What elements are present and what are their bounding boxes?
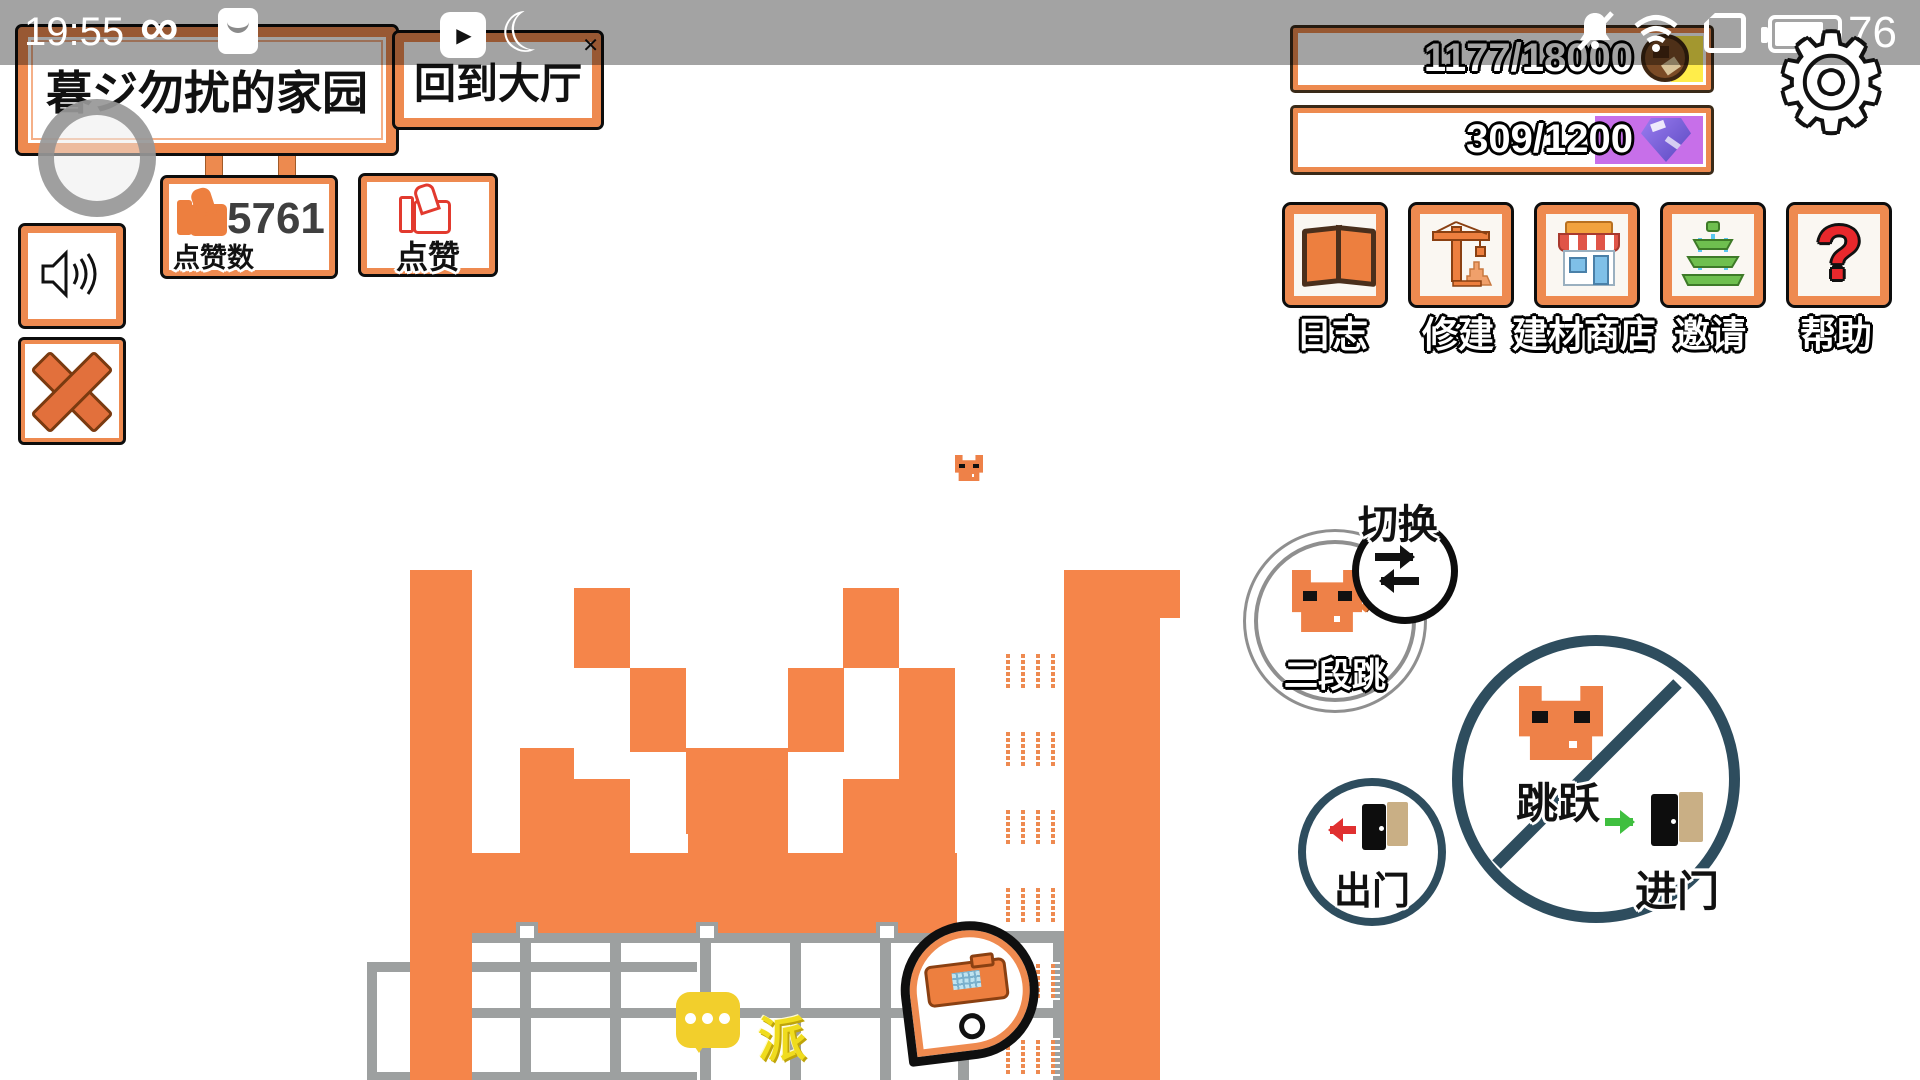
castle-column — [520, 748, 574, 855]
castle-step — [630, 668, 686, 752]
settings-gear-icon[interactable]: ⚙ — [1772, 18, 1890, 150]
castle-tooth — [843, 588, 899, 668]
fountain-icon — [1680, 220, 1746, 288]
door-icon — [1651, 792, 1703, 846]
castle-column — [899, 668, 955, 855]
fox-icon — [1519, 686, 1603, 760]
fox-icon — [1292, 570, 1362, 632]
fox-icon — [955, 455, 983, 481]
sound-button[interactable] — [18, 223, 126, 329]
castle-right-wall — [1064, 570, 1160, 1080]
grid-line — [367, 962, 377, 1080]
moon-icon: ☾ — [492, 0, 558, 71]
menu-label-invite: 邀请 — [1650, 306, 1770, 358]
grid-line — [610, 931, 621, 1080]
close-home-button[interactable] — [18, 337, 126, 445]
question-icon: ? — [1789, 207, 1889, 299]
grid-line — [520, 931, 531, 1080]
menu-label-help: 帮助 — [1776, 306, 1896, 358]
play-icon[interactable]: ▶ — [440, 12, 486, 58]
enter-door-label: 进门 — [1623, 858, 1731, 919]
castle-tooth — [574, 779, 630, 855]
infinity-icon: ∞ — [140, 0, 179, 58]
jump-label: 跳跃 — [1503, 770, 1613, 831]
exit-door-button[interactable]: 出门 — [1298, 778, 1446, 926]
crane-icon — [1427, 219, 1495, 289]
double-jump-label: 二段跳 — [1258, 648, 1412, 697]
menu-button-build[interactable] — [1408, 202, 1514, 308]
diamond-amount: 309/1200 — [1466, 117, 1633, 162]
menu-button-help[interactable]: ? — [1786, 202, 1892, 308]
like-button[interactable]: 点赞 — [358, 173, 498, 277]
enter-arrow-icon — [1605, 818, 1633, 826]
menu-button-invite[interactable] — [1660, 202, 1766, 308]
bell-muted-icon — [1572, 8, 1618, 54]
chat-speaker-label: 派对客: — [758, 1000, 822, 1080]
castle-tooth — [843, 779, 899, 855]
jump-enter-disabled-zone[interactable]: 跳跃 进门 — [1452, 635, 1740, 923]
clock-text: 19:55 — [24, 10, 124, 55]
like-count-board: 5761 点赞数 — [160, 175, 338, 279]
joystick[interactable] — [38, 99, 156, 217]
door-icon — [1362, 802, 1408, 850]
castle-left-wall — [410, 570, 472, 1080]
diamond-progress-bar: 309/1200 — [1290, 105, 1714, 175]
menu-button-log[interactable] — [1282, 202, 1388, 308]
like-count-label: 点赞数 — [173, 236, 254, 275]
speech-bubble-icon — [676, 992, 740, 1048]
ladder-texture — [1002, 808, 1060, 846]
ladder-texture — [1002, 652, 1060, 690]
grid-joint — [516, 922, 538, 942]
game-screen: 派对客: 二段跳 切换 跳跃 进门 — [0, 0, 1920, 1080]
sim-icon — [1704, 13, 1746, 53]
exit-arrow-icon — [1330, 826, 1356, 834]
status-bar: 19:55 ∞ ▶ ☾ 76 — [0, 0, 1920, 65]
grid-line — [880, 931, 891, 1080]
switch-label: 切换 — [1358, 492, 1438, 550]
pin-marker[interactable] — [889, 915, 1039, 1080]
menu-button-shop[interactable] — [1534, 202, 1640, 308]
castle-tooth — [574, 588, 630, 668]
like-button-label: 点赞 — [361, 232, 495, 278]
thumbs-up-outline-icon — [399, 184, 449, 232]
grid-joint — [696, 922, 718, 942]
castle-step — [788, 668, 844, 752]
castle-right-step — [1160, 570, 1180, 618]
speaker-icon — [37, 246, 103, 302]
thumbs-up-icon — [177, 188, 225, 234]
bag-icon — [218, 8, 258, 54]
castle-rounded-block — [688, 779, 788, 855]
ladder-texture — [1002, 730, 1060, 768]
menu-label-log: 日志 — [1272, 306, 1392, 358]
castle-band — [465, 853, 957, 933]
exit-door-label: 出门 — [1326, 860, 1418, 915]
crown-icon — [957, 438, 985, 452]
wifi-icon — [1632, 12, 1680, 54]
